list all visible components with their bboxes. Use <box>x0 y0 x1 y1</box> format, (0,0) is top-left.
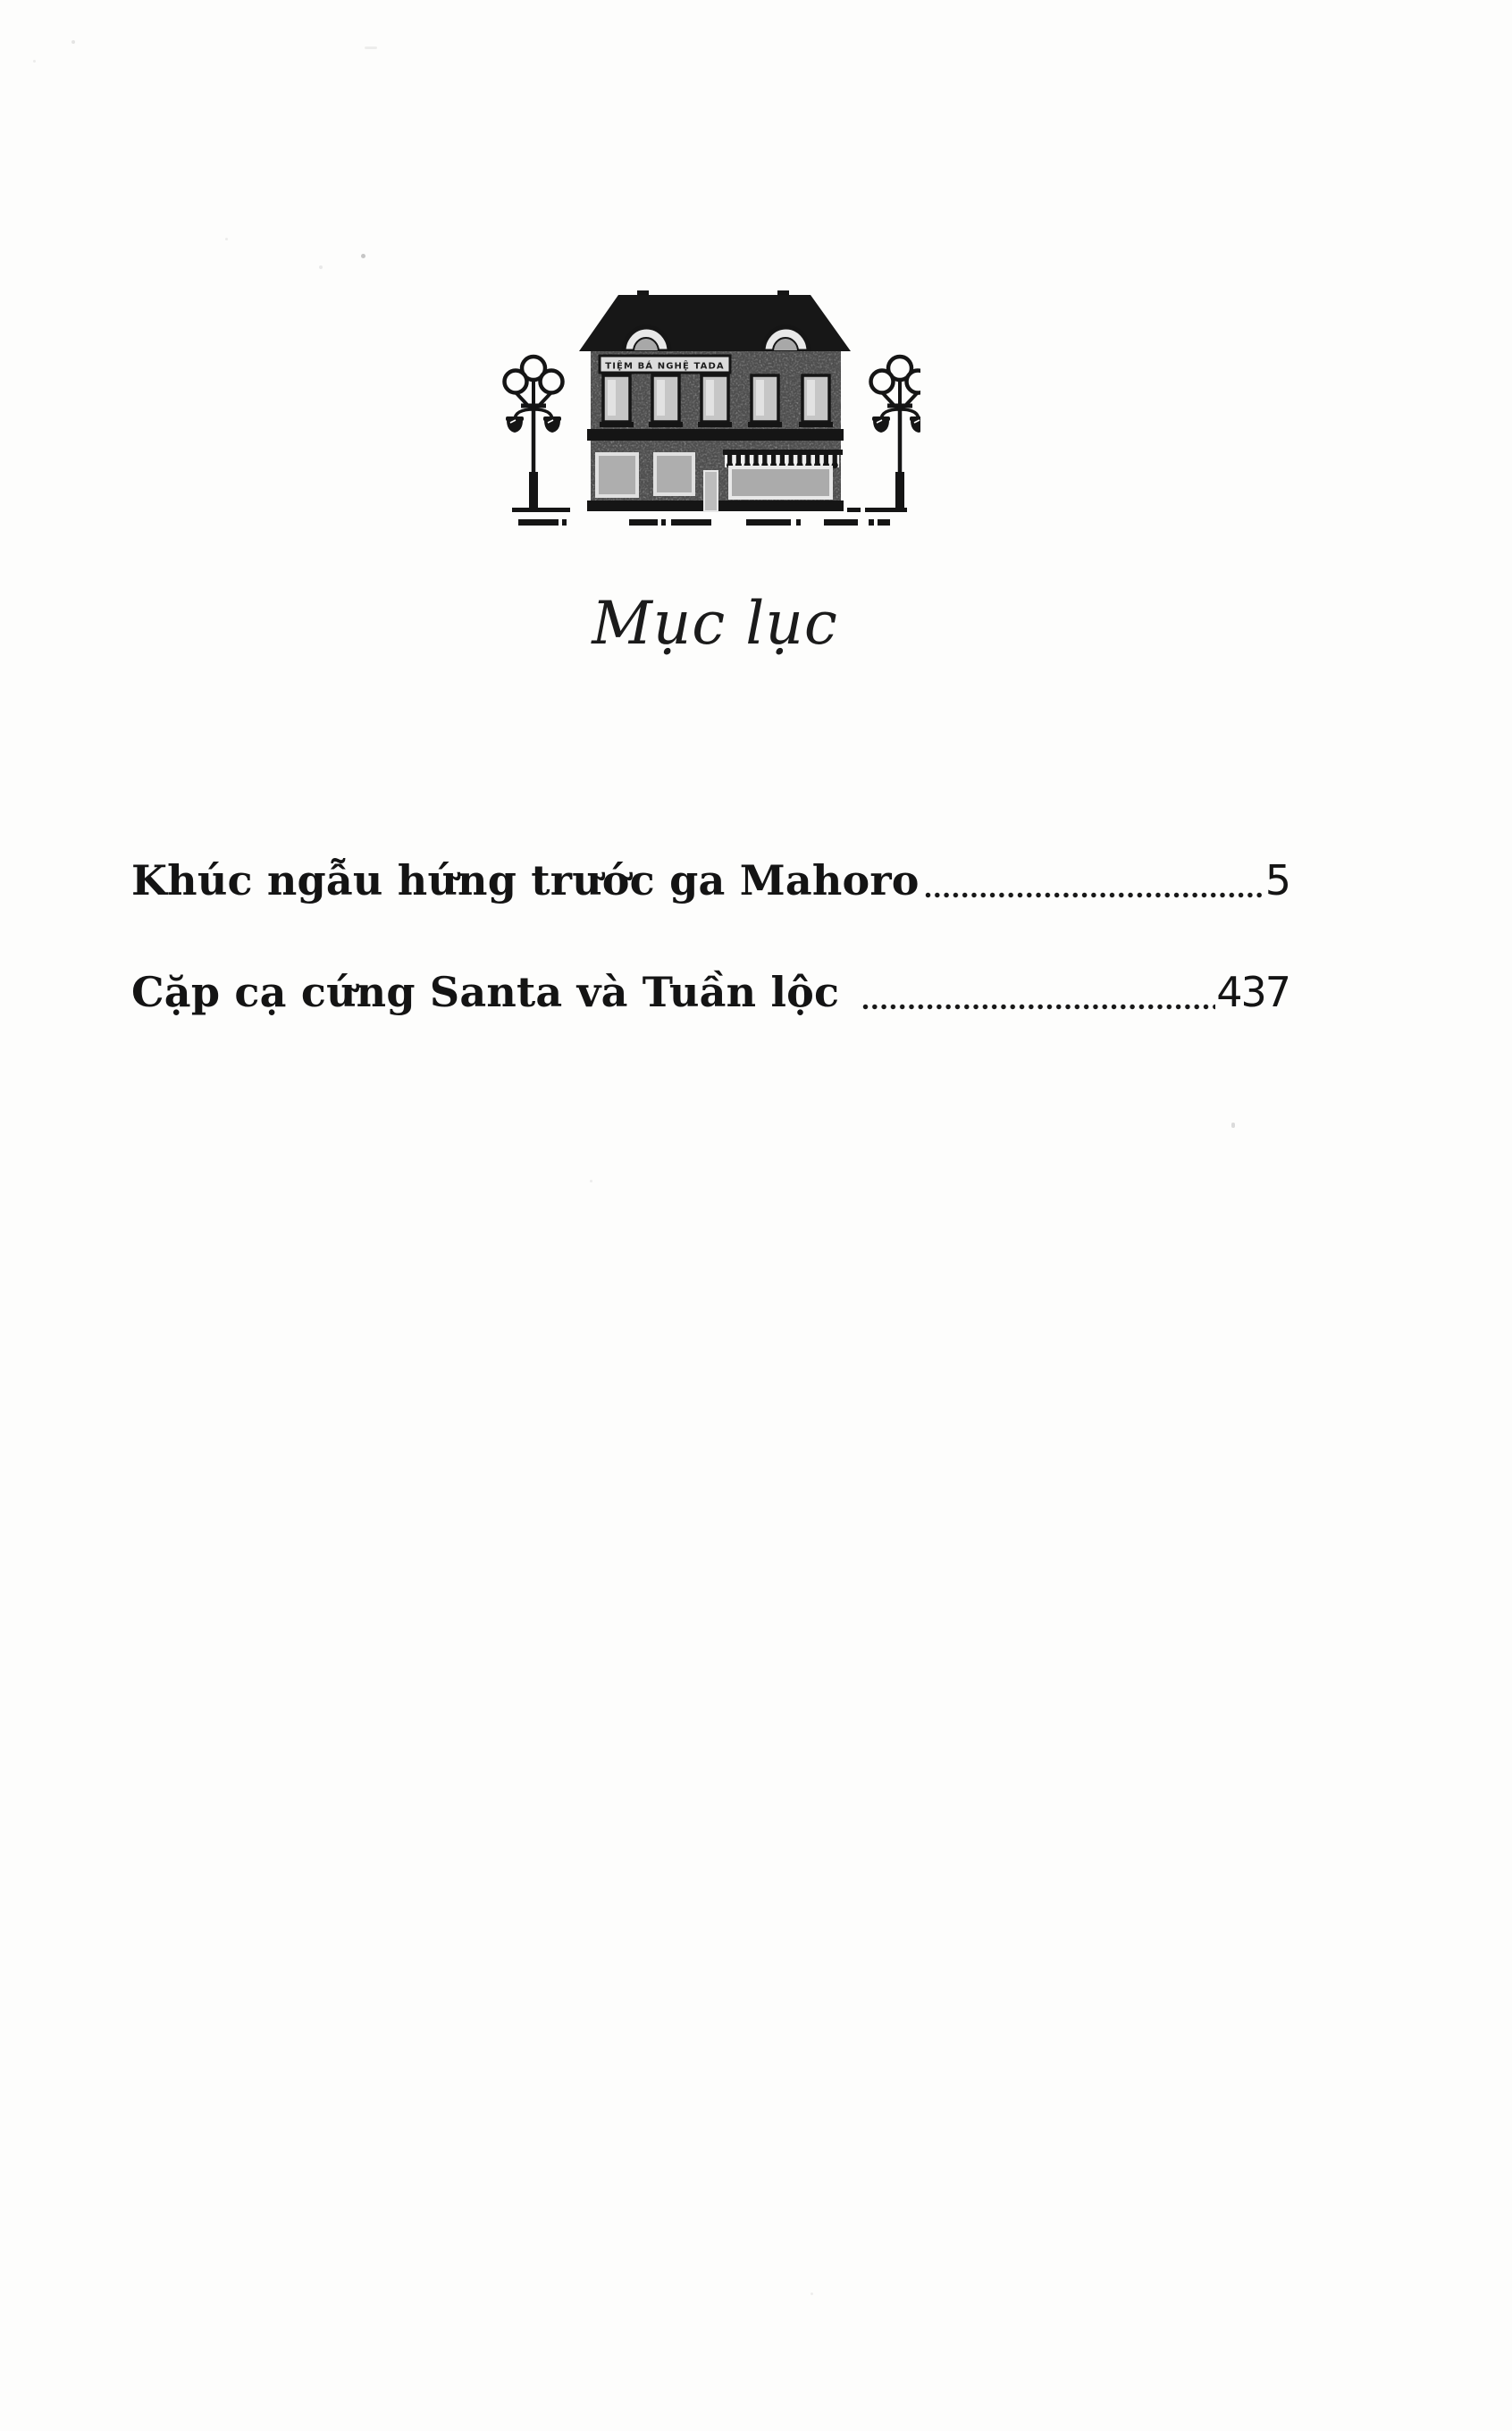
scan-speck <box>33 60 36 63</box>
roof <box>579 295 851 351</box>
shop-sign-text: TIỆM BÁ NGHỆ TADA <box>605 360 724 372</box>
door <box>704 471 718 511</box>
page-title: Mục lục <box>0 590 1430 658</box>
scan-speck <box>811 2292 813 2295</box>
toc-entry-label: Cặp cạ cứng Santa và Tuần lộc <box>131 972 839 1013</box>
scan-speck <box>361 254 365 258</box>
toc-entry-page-number: 437 <box>1216 972 1289 1013</box>
book-contents-page: TIỆM BÁ NGHỆ TADA <box>0 0 1512 2431</box>
shop-window <box>730 467 831 498</box>
toc-entry-page-number: 5 <box>1265 860 1289 901</box>
toc-entry: Khúc ngẫu hứng trước ga Mahoro 5 <box>131 860 1289 901</box>
floor-divider <box>587 429 844 441</box>
dot-leader <box>925 892 1264 898</box>
table-of-contents: Khúc ngẫu hứng trước ga Mahoro 5 Cặp cạ … <box>131 860 1289 1013</box>
scan-speck <box>319 265 323 269</box>
scan-speck <box>225 238 228 240</box>
scan-speck <box>590 1180 592 1182</box>
scan-speck <box>1231 1123 1235 1128</box>
street-lamp-left <box>505 357 571 512</box>
scan-speck <box>71 40 75 44</box>
toc-entry: Cặp cạ cứng Santa và Tuần lộc 437 <box>131 972 1289 1013</box>
street-lamp-right <box>847 357 920 512</box>
scan-speck <box>365 46 377 49</box>
dot-leader <box>862 1004 1215 1010</box>
awning <box>723 450 843 468</box>
storefront-illustration: TIỆM BÁ NGHỆ TADA <box>500 286 920 536</box>
shop-sign: TIỆM BÁ NGHỆ TADA <box>600 356 730 373</box>
toc-entry-label: Khúc ngẫu hứng trước ga Mahoro <box>131 860 920 901</box>
